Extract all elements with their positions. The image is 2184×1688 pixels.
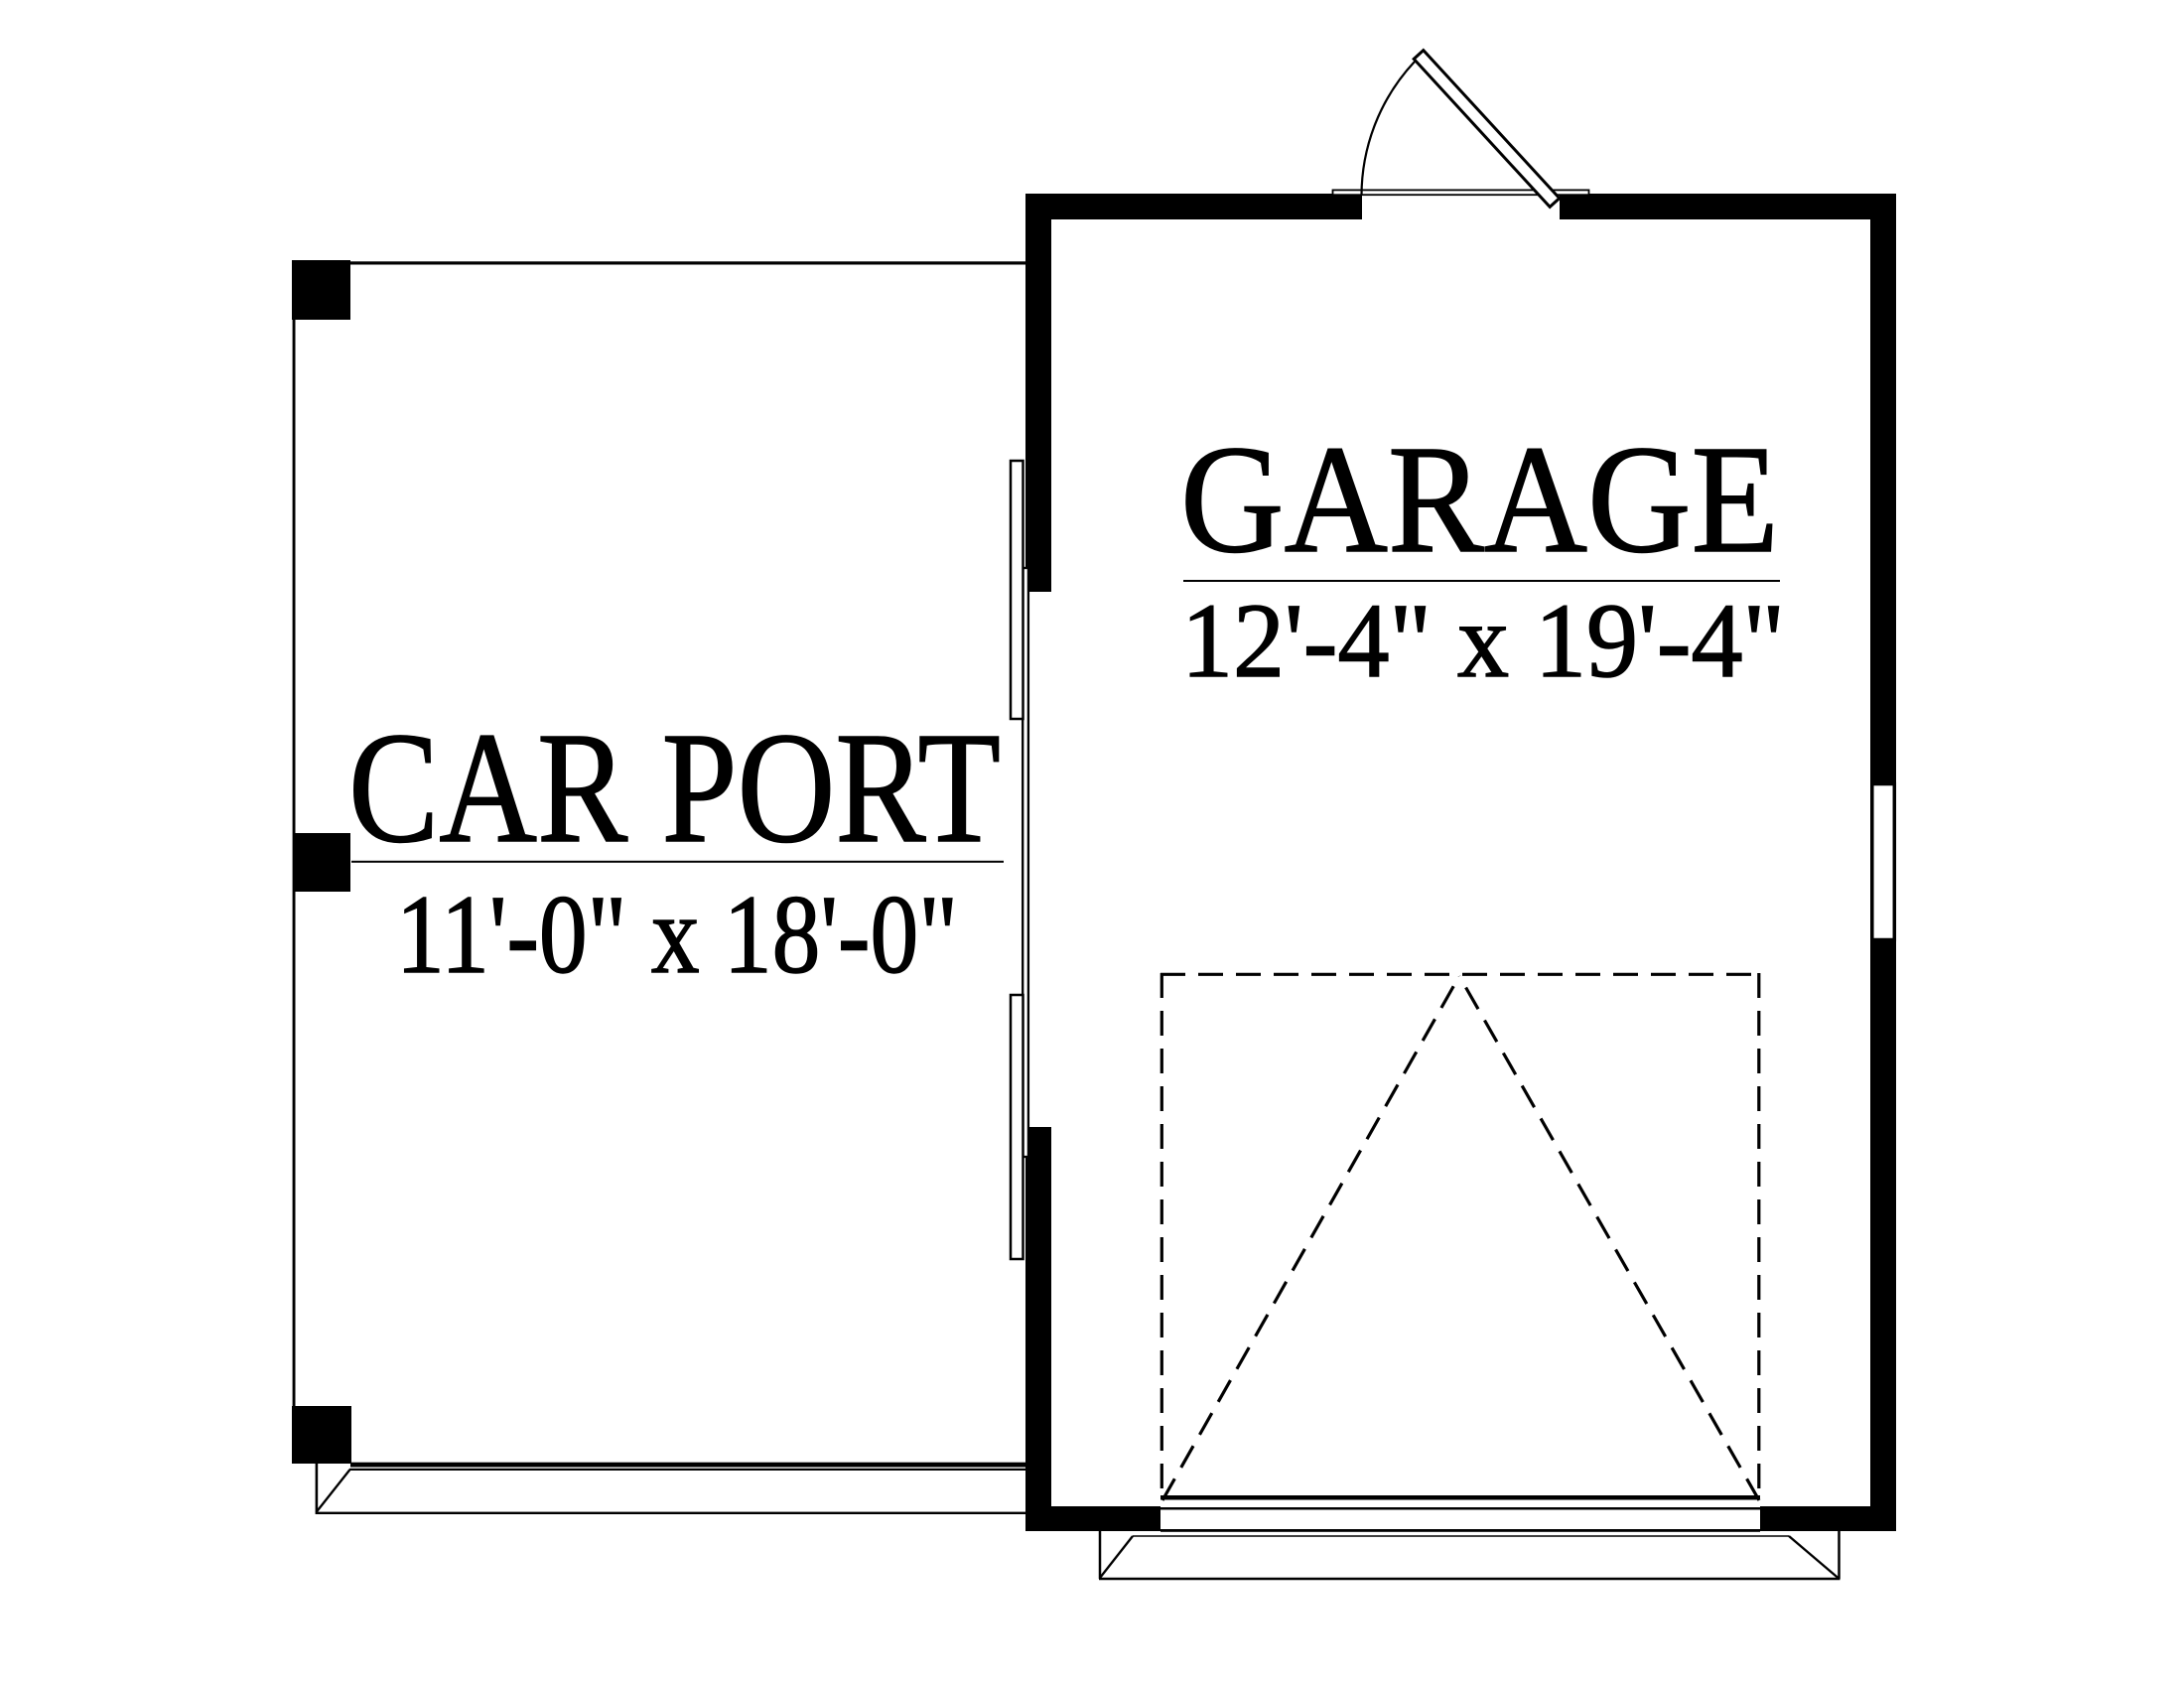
svg-text:11'-0" x 18'-0": 11'-0" x 18'-0" [396, 873, 958, 997]
svg-text:CAR PORT: CAR PORT [348, 699, 1001, 876]
svg-text:GARAGE: GARAGE [1180, 413, 1779, 585]
svg-text:12'-4" x 19'-4": 12'-4" x 19'-4" [1181, 583, 1785, 700]
